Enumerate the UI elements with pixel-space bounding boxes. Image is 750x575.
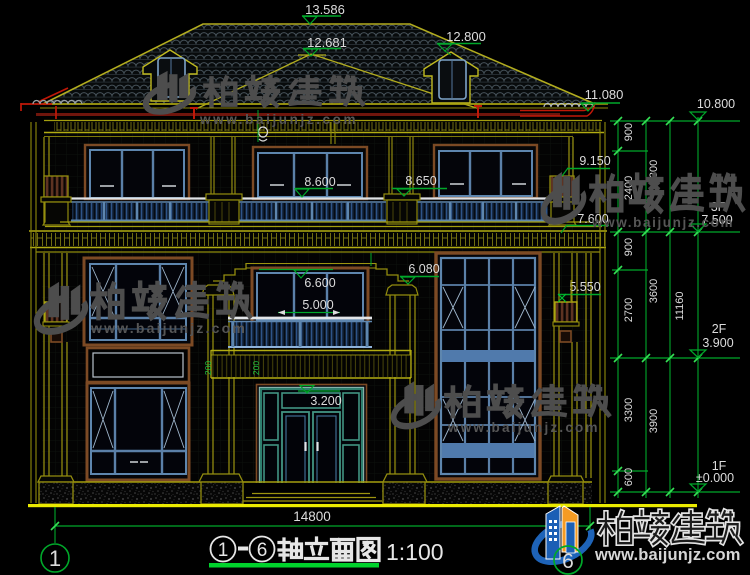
svg-text:5.550: 5.550 xyxy=(569,280,600,294)
svg-text:8.650: 8.650 xyxy=(405,174,436,188)
svg-text:10.800: 10.800 xyxy=(697,97,735,111)
svg-text:900: 900 xyxy=(623,123,635,141)
svg-text:14800: 14800 xyxy=(293,509,331,524)
svg-text:200: 200 xyxy=(251,361,261,375)
svg-text:12.681: 12.681 xyxy=(307,35,347,50)
svg-text:www.baijunjz.com: www.baijunjz.com xyxy=(199,112,358,127)
svg-text:3.900: 3.900 xyxy=(702,336,733,350)
svg-text:900: 900 xyxy=(623,238,635,256)
svg-text:6: 6 xyxy=(562,550,574,573)
svg-text:5.000: 5.000 xyxy=(302,298,333,312)
svg-text:1:100: 1:100 xyxy=(386,539,444,565)
svg-text:www.baijunjz.com: www.baijunjz.com xyxy=(447,420,600,435)
svg-text:11.080: 11.080 xyxy=(585,87,624,102)
svg-text:1: 1 xyxy=(218,540,229,561)
svg-text:2F: 2F xyxy=(712,322,727,336)
svg-text:3.200: 3.200 xyxy=(310,394,341,408)
svg-text:8.600: 8.600 xyxy=(304,175,335,189)
svg-text:6.600: 6.600 xyxy=(304,276,335,290)
svg-text:12.800: 12.800 xyxy=(446,29,486,44)
svg-text:9.150: 9.150 xyxy=(579,154,610,168)
svg-text:200: 200 xyxy=(203,361,213,375)
svg-text:3300: 3300 xyxy=(623,398,635,422)
svg-text:13.586: 13.586 xyxy=(305,2,345,17)
svg-text:3600: 3600 xyxy=(648,279,660,303)
svg-text:www.baijunjz.com: www.baijunjz.com xyxy=(591,215,734,230)
svg-text:6: 6 xyxy=(257,540,268,561)
svg-text:www.baijunjz.com: www.baijunjz.com xyxy=(90,320,247,336)
svg-text:600: 600 xyxy=(623,468,635,486)
svg-text:www.baijunjz.com: www.baijunjz.com xyxy=(594,546,741,564)
svg-text:6.080: 6.080 xyxy=(408,262,439,276)
svg-text:3900: 3900 xyxy=(648,409,660,433)
svg-text:2700: 2700 xyxy=(623,298,635,322)
svg-text:1: 1 xyxy=(49,546,61,571)
svg-text:±0.000: ±0.000 xyxy=(696,471,734,485)
svg-text:11160: 11160 xyxy=(674,292,686,321)
